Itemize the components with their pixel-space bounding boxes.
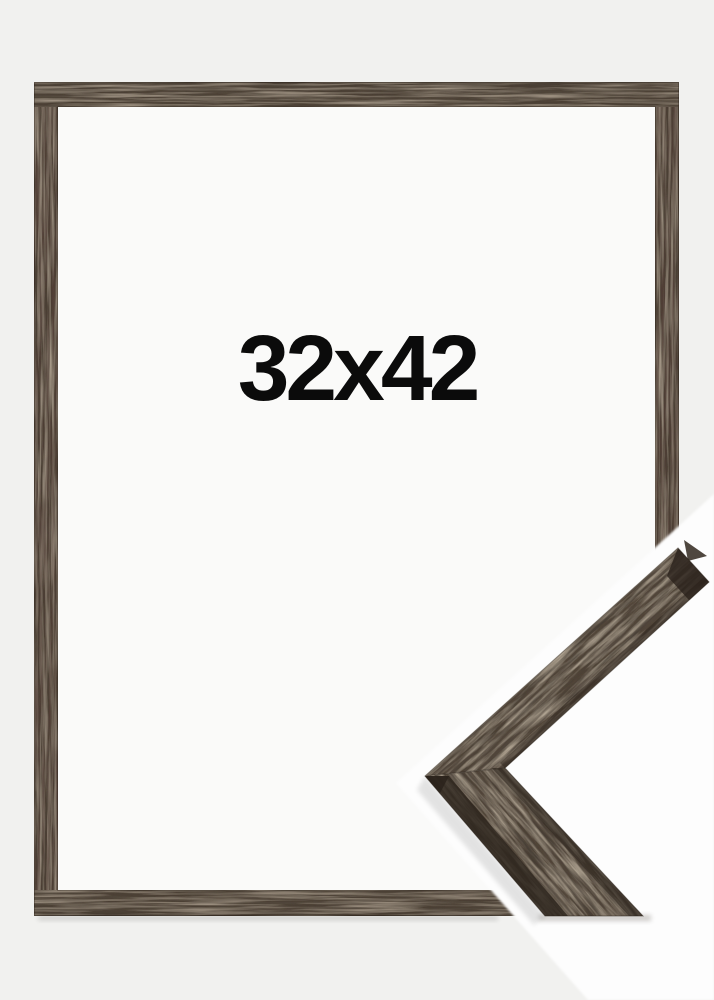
frame-top-bar — [34, 82, 679, 107]
size-label: 32x42 — [0, 320, 714, 416]
picture-frame-illustration — [0, 0, 714, 1000]
frame-product-photo: 32x42 — [0, 0, 714, 1000]
frame-drop-shadow — [38, 916, 498, 921]
frame-left-bar — [34, 82, 58, 916]
